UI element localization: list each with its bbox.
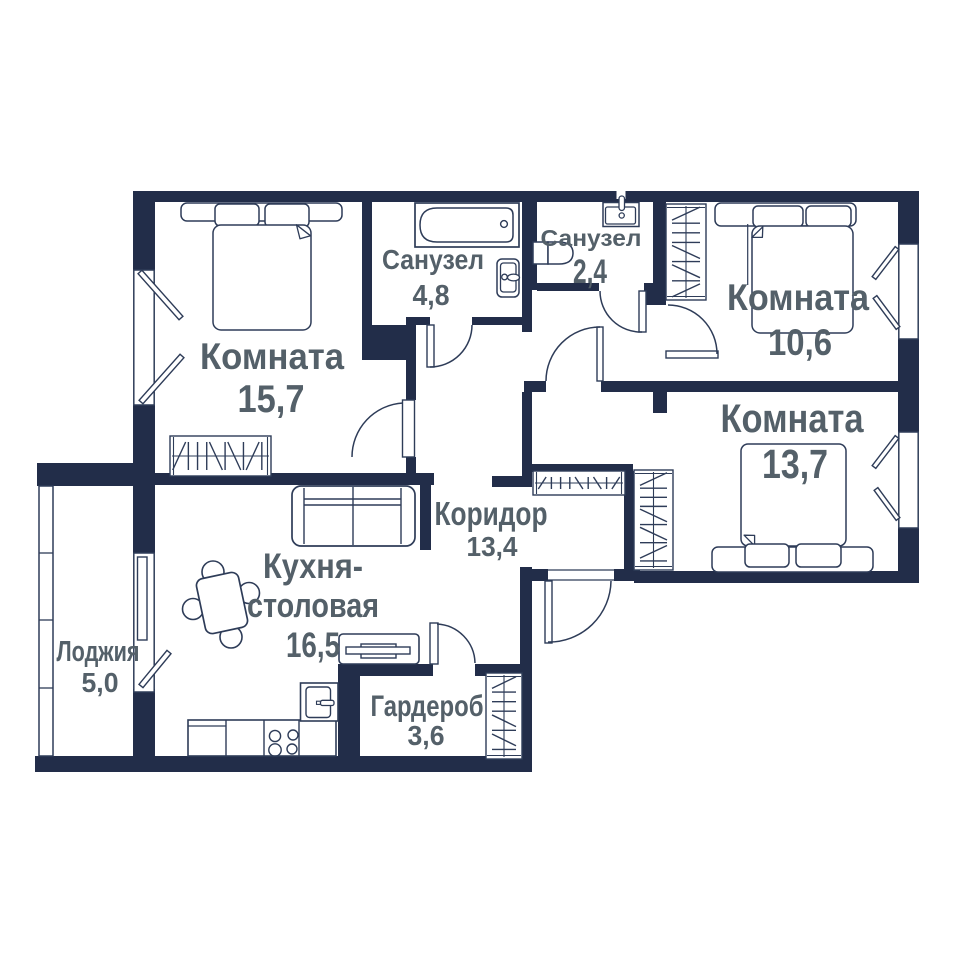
svg-text:15,7: 15,7 bbox=[238, 378, 305, 421]
svg-text:3,6: 3,6 bbox=[408, 720, 445, 751]
svg-text:Кухня-: Кухня- bbox=[263, 547, 363, 586]
svg-text:Санузел: Санузел bbox=[382, 244, 484, 275]
svg-text:4,8: 4,8 bbox=[413, 280, 450, 312]
svg-text:2,4: 2,4 bbox=[573, 253, 607, 291]
svg-text:13,4: 13,4 bbox=[467, 531, 518, 562]
svg-text:10,6: 10,6 bbox=[768, 322, 832, 363]
svg-text:5,0: 5,0 bbox=[82, 667, 119, 698]
svg-text:Гардероб: Гардероб bbox=[371, 690, 484, 723]
svg-text:Санузел: Санузел bbox=[541, 225, 642, 251]
svg-text:Лоджия: Лоджия bbox=[57, 636, 140, 668]
svg-text:16,5: 16,5 bbox=[286, 625, 340, 665]
svg-text:Комната: Комната bbox=[721, 397, 865, 441]
svg-text:Комната: Комната bbox=[727, 277, 869, 318]
svg-text:Комната: Комната bbox=[200, 335, 345, 377]
svg-text:Коридор: Коридор bbox=[435, 495, 548, 532]
svg-text:столовая: столовая bbox=[247, 587, 379, 625]
svg-text:13,7: 13,7 bbox=[762, 441, 828, 487]
